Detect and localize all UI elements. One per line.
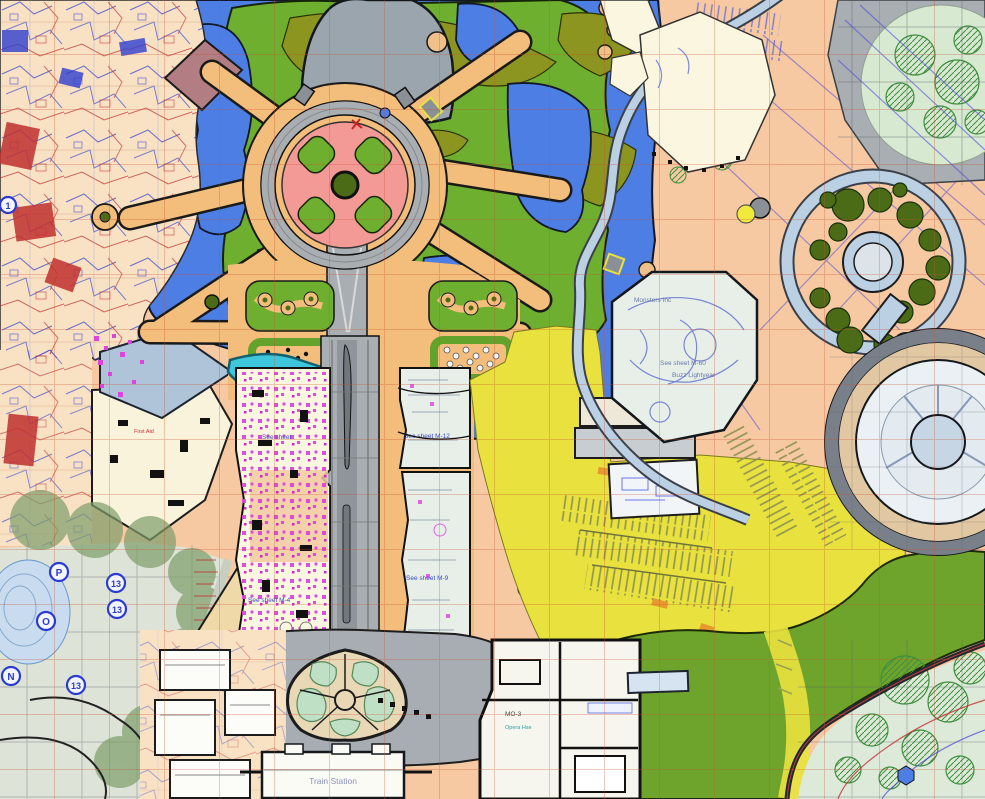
marker-13b: 13 <box>108 600 126 618</box>
marker-o: O <box>37 612 55 630</box>
grid-overlay <box>0 0 985 799</box>
marker-1: 1 <box>0 197 16 213</box>
marker-p: P <box>50 563 68 581</box>
svg-text:P: P <box>56 568 63 579</box>
marker-n: N <box>2 667 20 685</box>
marker-13a: 13 <box>107 574 125 592</box>
svg-text:13: 13 <box>111 579 121 589</box>
site-plan-canvas[interactable]: First Aid <box>0 0 985 799</box>
svg-text:1: 1 <box>5 201 10 211</box>
svg-text:O: O <box>42 617 50 628</box>
marker-13c: 13 <box>67 676 85 694</box>
svg-text:N: N <box>7 672 14 683</box>
svg-text:13: 13 <box>112 605 122 615</box>
site-plan-svg: First Aid <box>0 0 985 799</box>
svg-text:13: 13 <box>71 681 81 691</box>
